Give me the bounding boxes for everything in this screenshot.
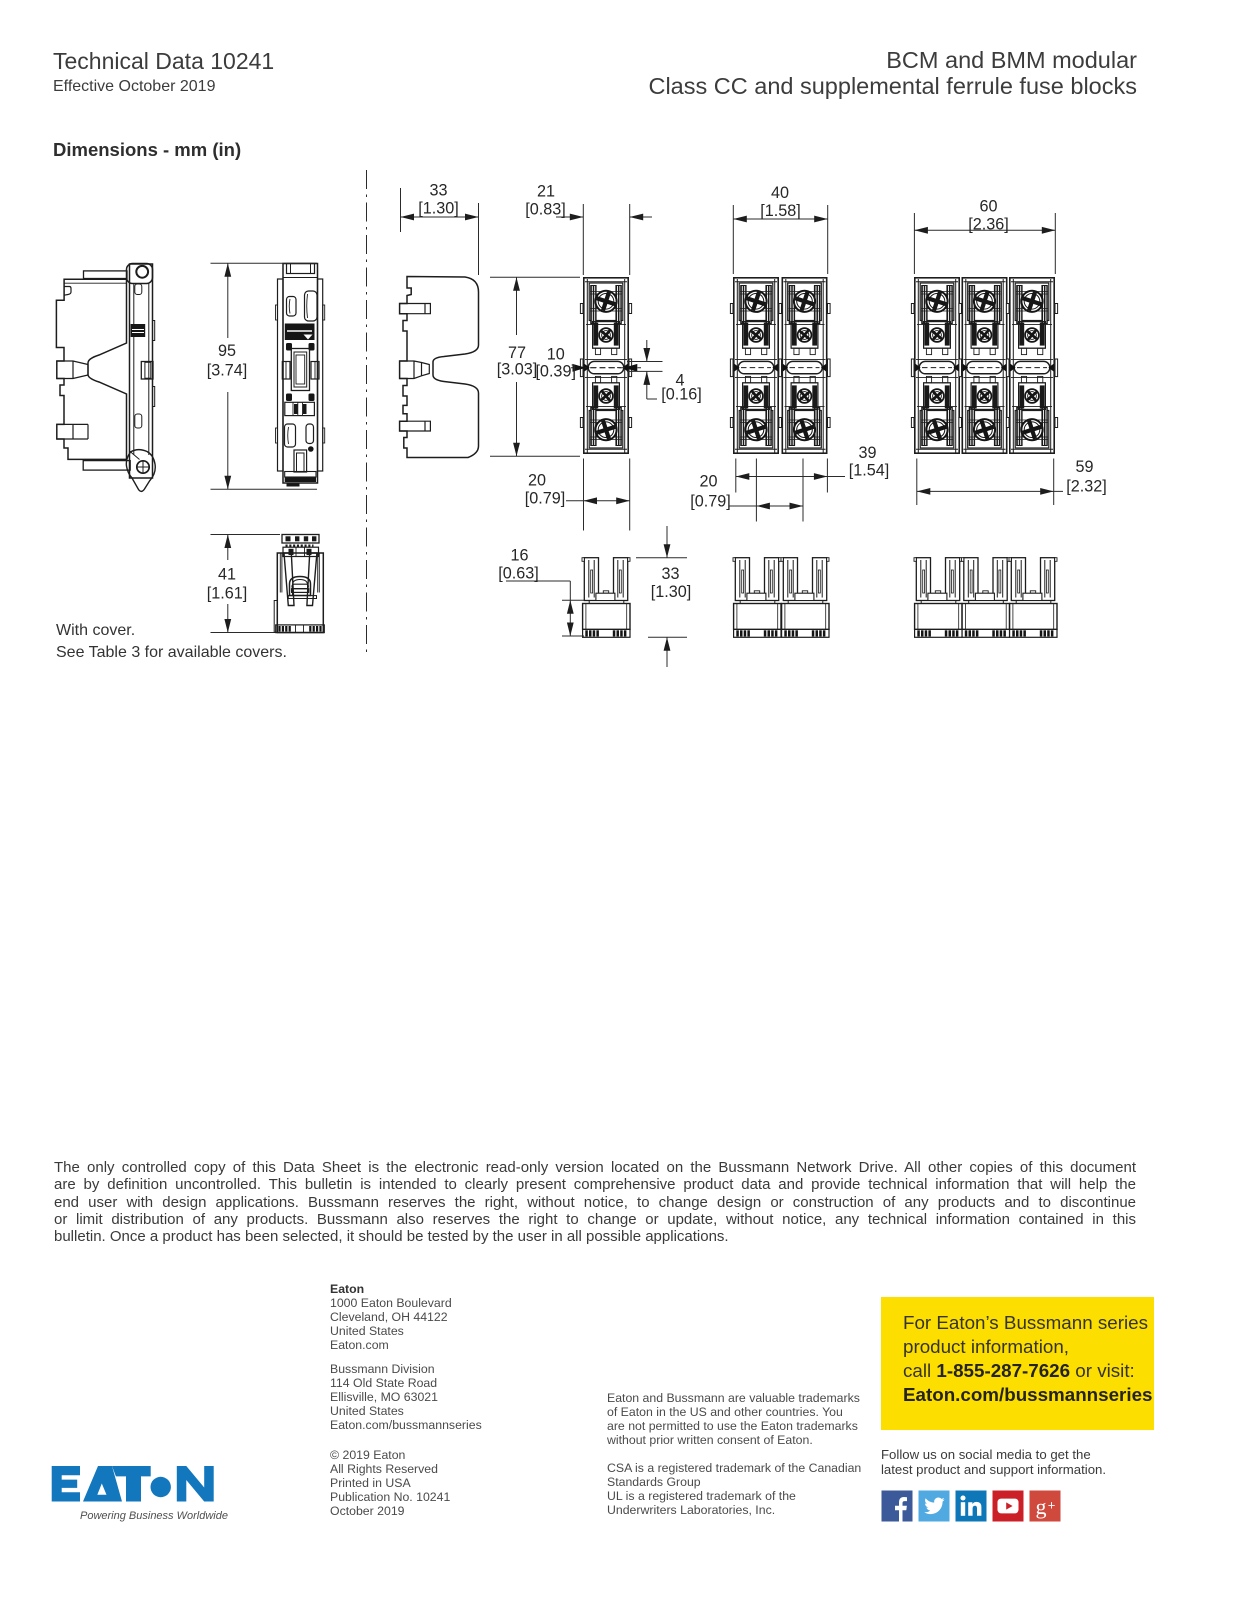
svg-text:[0.79]: [0.79] <box>690 493 731 511</box>
svg-text:39: 39 <box>858 444 876 462</box>
svg-text:Powering Business Worldwide: Powering Business Worldwide <box>80 1510 228 1522</box>
svg-text:59: 59 <box>1075 458 1093 476</box>
svg-text:33: 33 <box>661 565 679 583</box>
svg-text:[0.83]: [0.83] <box>525 201 566 219</box>
svg-text:+: + <box>1048 1498 1056 1513</box>
svg-text:10: 10 <box>547 346 565 364</box>
svg-text:g: g <box>1036 1494 1047 1519</box>
svg-text:[0.79]: [0.79] <box>525 490 566 508</box>
svg-text:20: 20 <box>699 473 717 491</box>
svg-text:21: 21 <box>537 183 555 201</box>
svg-text:[1.54]: [1.54] <box>849 462 890 480</box>
svg-text:60: 60 <box>979 198 997 216</box>
svg-text:95: 95 <box>218 342 236 360</box>
svg-text:[0.16]: [0.16] <box>661 386 702 404</box>
svg-text:40: 40 <box>771 184 789 202</box>
svg-text:[2.36]: [2.36] <box>968 216 1009 234</box>
svg-text:[0.39]: [0.39] <box>535 363 576 381</box>
svg-text:[3.74]: [3.74] <box>207 362 248 380</box>
svg-text:77: 77 <box>508 344 526 362</box>
svg-text:[1.61]: [1.61] <box>207 585 248 603</box>
svg-text:[1.30]: [1.30] <box>651 583 692 601</box>
svg-text:[0.63]: [0.63] <box>498 565 539 583</box>
svg-text:33: 33 <box>429 182 447 200</box>
svg-text:20: 20 <box>528 472 546 490</box>
svg-text:16: 16 <box>510 547 528 565</box>
svg-text:[1.30]: [1.30] <box>418 200 459 218</box>
svg-text:[1.58]: [1.58] <box>760 202 801 220</box>
svg-text:41: 41 <box>218 566 236 584</box>
svg-text:[2.32]: [2.32] <box>1066 478 1107 496</box>
svg-text:[3.03]: [3.03] <box>497 361 538 379</box>
